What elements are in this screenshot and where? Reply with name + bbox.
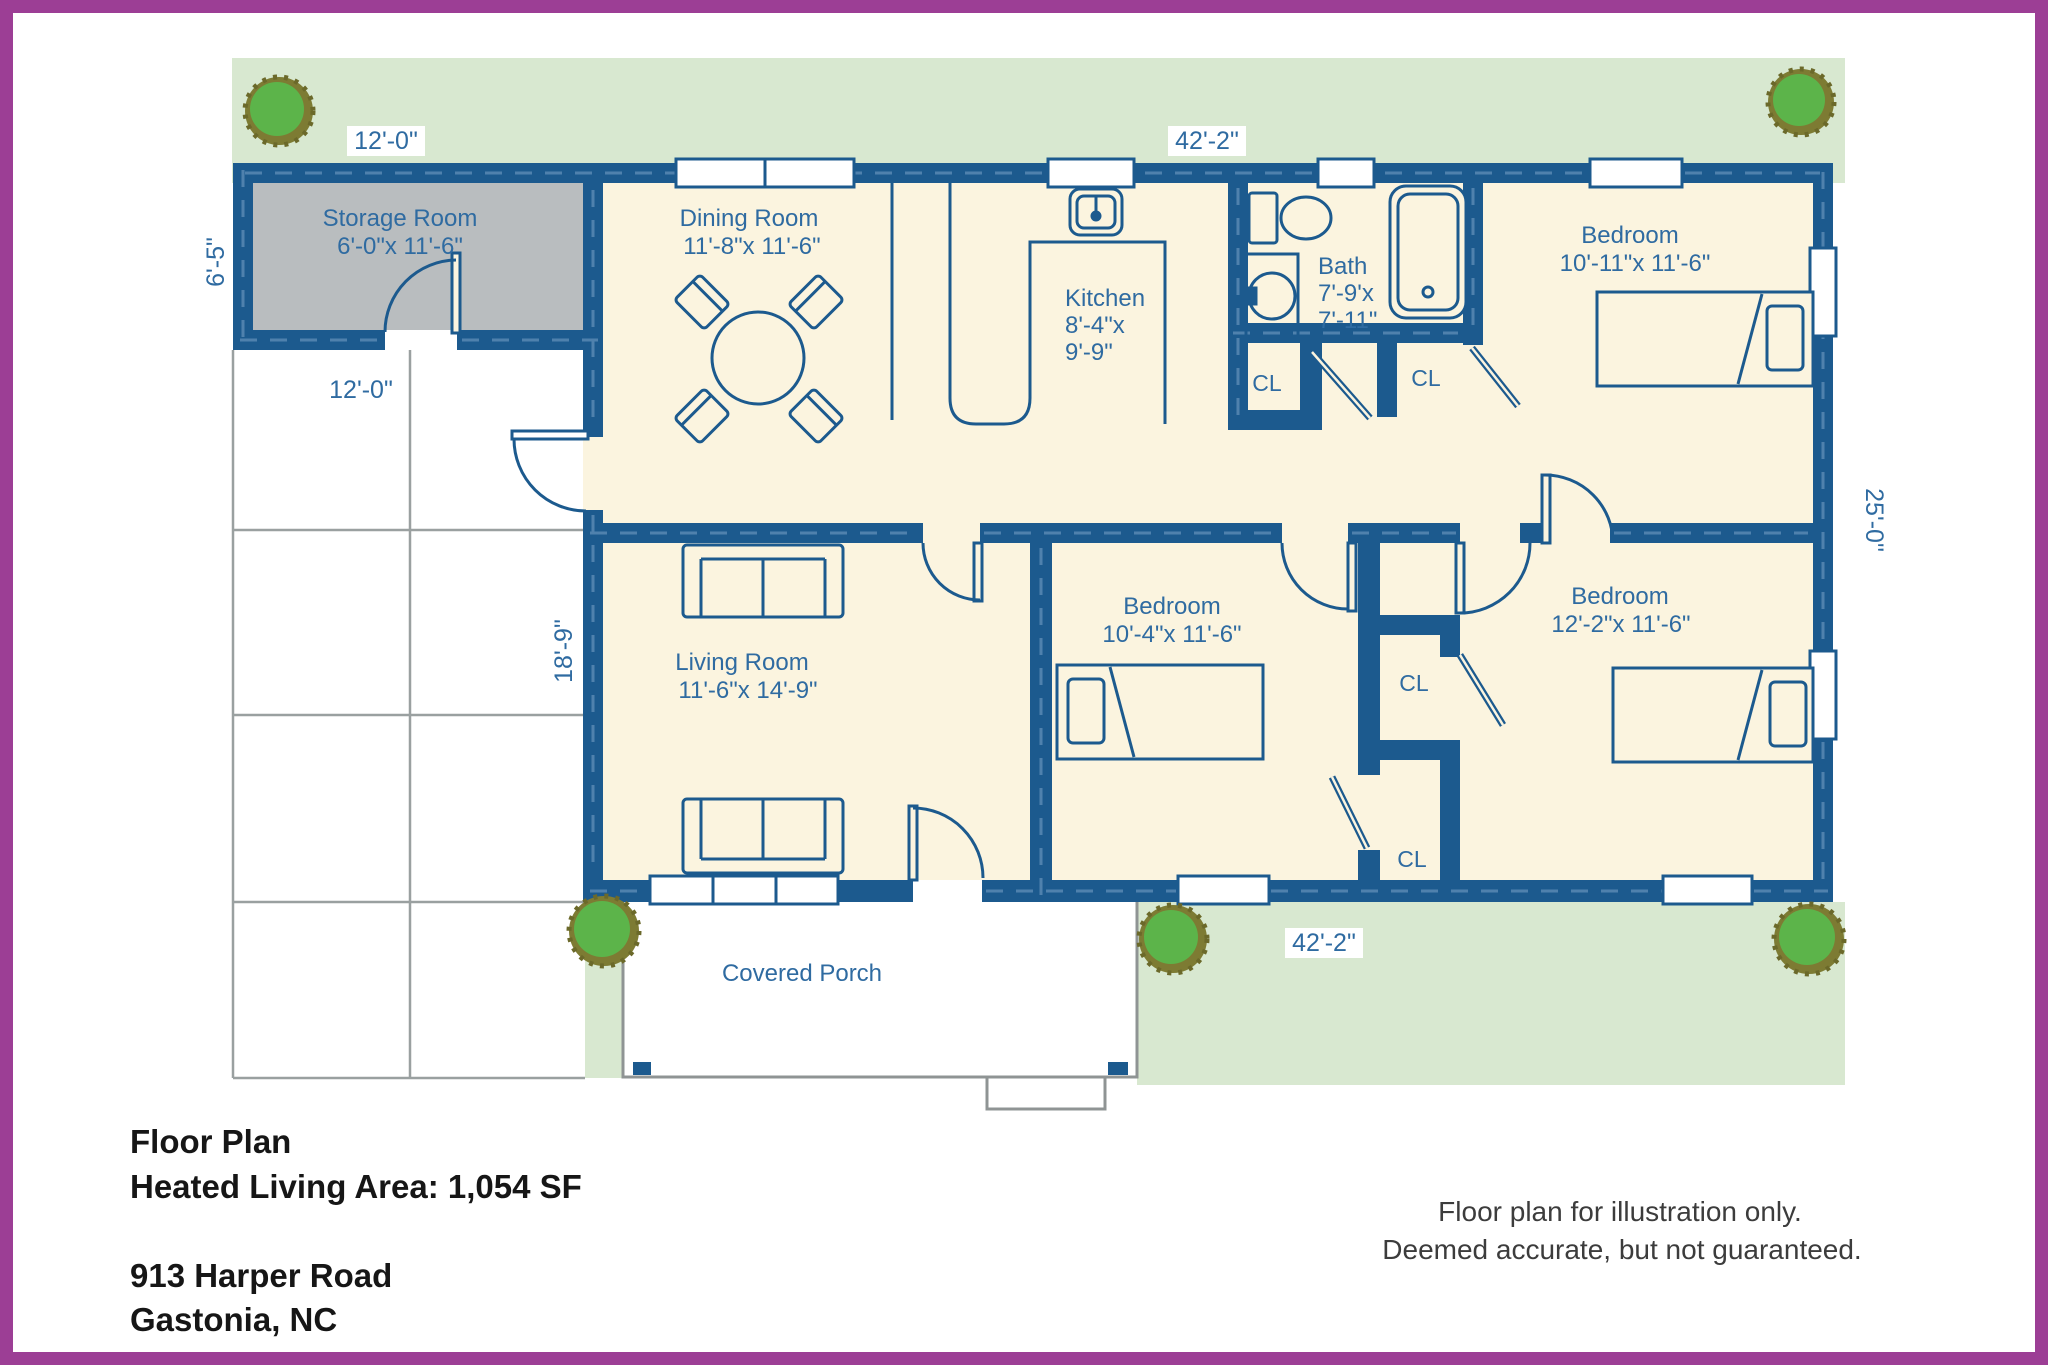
window [1663, 876, 1752, 904]
porch-post [633, 1062, 651, 1075]
closet-label: CL [1252, 370, 1282, 396]
door-leaf [1456, 543, 1464, 613]
porch-post [1108, 1062, 1128, 1075]
window [650, 876, 838, 904]
wall-segment [1377, 343, 1397, 417]
bed-middle-bedroom [1057, 665, 1263, 759]
wall-segment [1440, 635, 1460, 657]
closet-label: CL [1397, 846, 1427, 872]
closet-label: CL [1411, 365, 1441, 391]
living-room-label: Living Room [675, 649, 808, 676]
kitchen-faucet-dot [1092, 212, 1100, 220]
bed-top-right-bedroom [1597, 292, 1813, 386]
sofa-bottom [683, 799, 843, 873]
bedroom-top-right-label: Bedroom [1581, 222, 1678, 249]
kitchen-dims-1: 8'-4"x [1065, 312, 1125, 339]
dim-house-width-top: 42'-2" [1175, 127, 1239, 155]
dining-room-dims: 11'-8"x 11'-6" [683, 233, 820, 260]
dining-table [712, 312, 804, 404]
tree-icon [245, 77, 313, 145]
carport-slab [180, 350, 583, 1085]
bath-label: Bath [1318, 253, 1367, 280]
dim-storage-width: 12'-0" [354, 127, 418, 155]
toilet-bowl [1281, 197, 1331, 239]
kitchen-dims-2: 9'-9" [1065, 339, 1113, 366]
door-leaf [452, 253, 460, 333]
footer-area: Heated Living Area: 1,054 SF [130, 1168, 582, 1205]
door-leaf [974, 543, 982, 601]
tree-icon [1768, 69, 1834, 135]
disclaimer-line1: Floor plan for illustration only. [1438, 1196, 1802, 1227]
bath-dims-1: 7'-9'x [1318, 280, 1374, 307]
closet-label: CL [1399, 670, 1429, 696]
bedroom-bottom-right-dims: 12'-2"x 11'-6" [1551, 611, 1690, 638]
window [1590, 159, 1682, 187]
door-gap [385, 330, 457, 350]
tree-icon [569, 896, 639, 966]
wall-segment [1440, 760, 1460, 902]
disclaimer: Floor plan for illustration only. Deemed… [1382, 1196, 1861, 1265]
window [1048, 159, 1134, 187]
porch-slab [623, 902, 1137, 1077]
door-leaf [909, 806, 917, 880]
bedroom-middle-dims: 10'-4"x 11'-6" [1102, 621, 1241, 648]
floor-plan-page: Storage Room 6'-0"x 11'-6" Dining Room 1… [0, 0, 2048, 1365]
dining-room-label: Dining Room [680, 205, 819, 232]
door-leaf [1348, 543, 1356, 611]
footer-address-line1: 913 Harper Road [130, 1257, 392, 1294]
wall-segment [838, 880, 913, 902]
porch-step [987, 1077, 1105, 1109]
dim-house-width-bottom: 42'-2" [1292, 929, 1356, 957]
dim-storage-height: 6'-5" [202, 237, 230, 287]
bath-faucet [1246, 288, 1256, 304]
bedroom-bottom-right-label: Bedroom [1571, 583, 1668, 610]
door-leaf [512, 431, 588, 439]
door-gap [913, 880, 982, 902]
footer-title: Floor Plan [130, 1123, 291, 1160]
toilet-tank [1249, 193, 1277, 243]
tree-icon [1774, 904, 1844, 974]
bed-bottom-right-bedroom [1613, 668, 1813, 762]
door-leaf [1542, 475, 1550, 543]
footer-address-line2: Gastonia, NC [130, 1301, 337, 1338]
wall-segment [1380, 615, 1460, 635]
bedroom-top-right-dims: 10'-11"x 11'-6" [1560, 250, 1711, 277]
dim-carport-width: 12'-0" [329, 376, 393, 404]
covered-porch-label: Covered Porch [722, 960, 882, 987]
dim-carport-height: 18'-9" [550, 619, 578, 683]
sofa-top [683, 545, 843, 617]
footer: Floor Plan Heated Living Area: 1,054 SF … [130, 1123, 582, 1338]
window [1318, 159, 1374, 187]
wall-segment [1358, 850, 1380, 902]
bath-dims-2: 7'-11" [1318, 307, 1377, 334]
storage-room-dims: 6'-0"x 11'-6" [337, 233, 463, 260]
floor-plan-drawing: Storage Room 6'-0"x 11'-6" Dining Room 1… [13, 13, 2035, 1352]
storage-room-label: Storage Room [323, 205, 478, 232]
window [1178, 876, 1269, 904]
carport-area [180, 350, 585, 1085]
dim-house-depth: 25'-0" [1860, 488, 1888, 552]
porch [623, 902, 1137, 1109]
disclaimer-line2: Deemed accurate, but not guaranteed. [1382, 1234, 1861, 1265]
kitchen-label: Kitchen [1065, 285, 1145, 312]
living-room-dims: 11'-6"x 14'-9" [678, 677, 817, 704]
bedroom-middle-label: Bedroom [1123, 593, 1220, 620]
wall-segment [1228, 410, 1322, 430]
wall-segment [1358, 740, 1460, 760]
tree-icon [1139, 905, 1207, 973]
lawn-bottom-right [1137, 902, 1845, 1085]
